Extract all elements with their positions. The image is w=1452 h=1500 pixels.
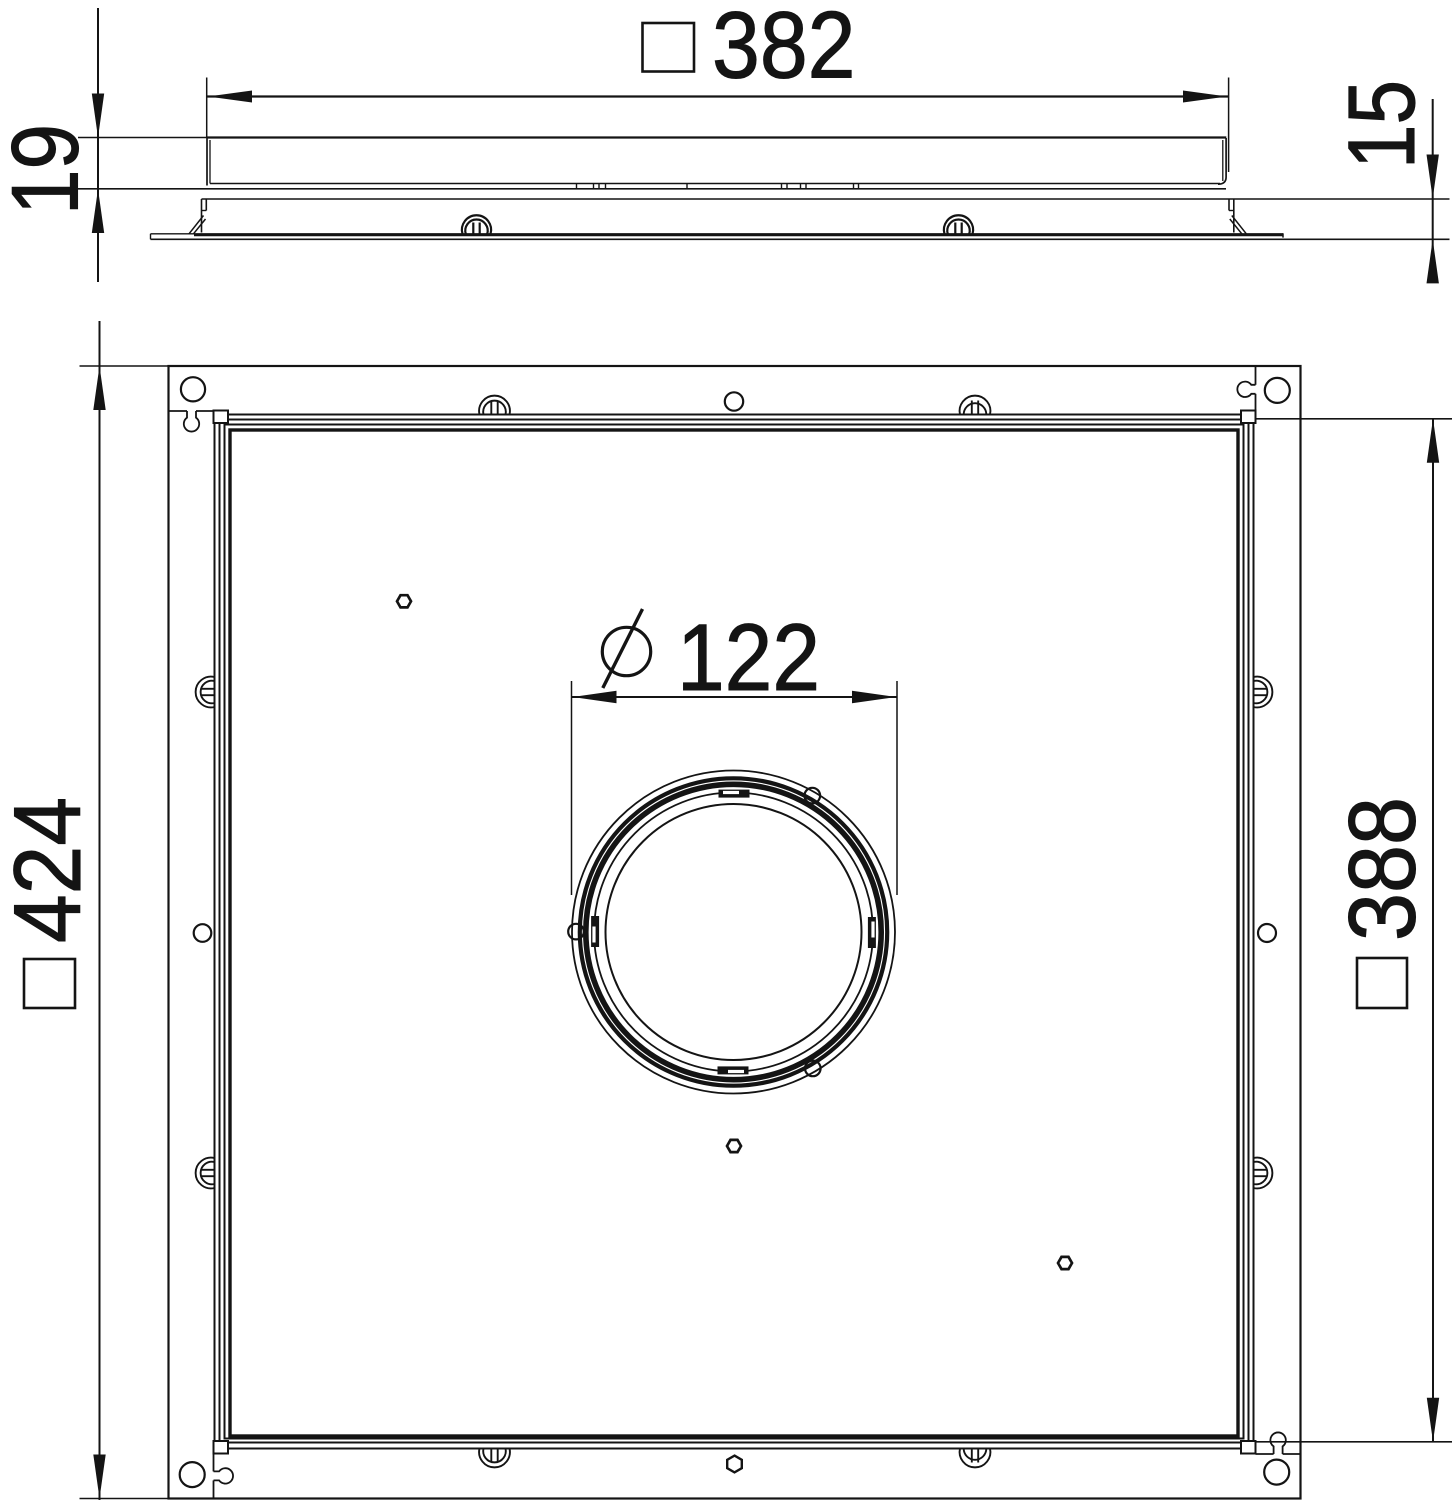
svg-text:122: 122 [677, 605, 820, 711]
svg-text:388: 388 [1330, 797, 1436, 941]
svg-text:382: 382 [712, 0, 856, 99]
svg-text:15: 15 [1329, 80, 1435, 169]
svg-text:424: 424 [0, 797, 101, 943]
